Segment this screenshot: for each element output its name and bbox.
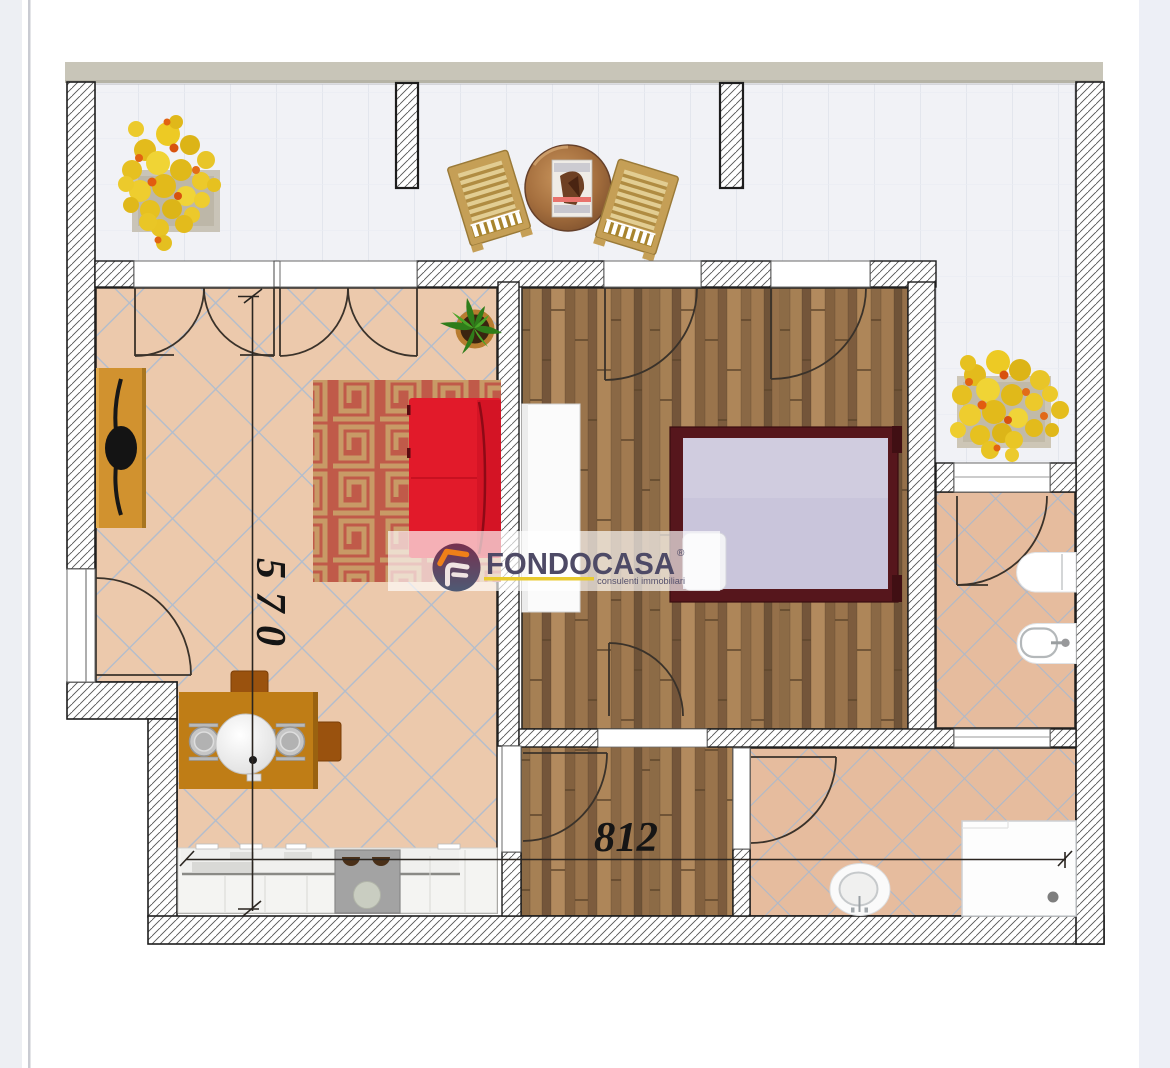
svg-text:812: 812 [594,815,658,861]
svg-text:®: ® [677,548,685,559]
svg-text:570: 570 [247,558,293,646]
svg-text:consulenti immobiliari: consulenti immobiliari [597,576,685,586]
